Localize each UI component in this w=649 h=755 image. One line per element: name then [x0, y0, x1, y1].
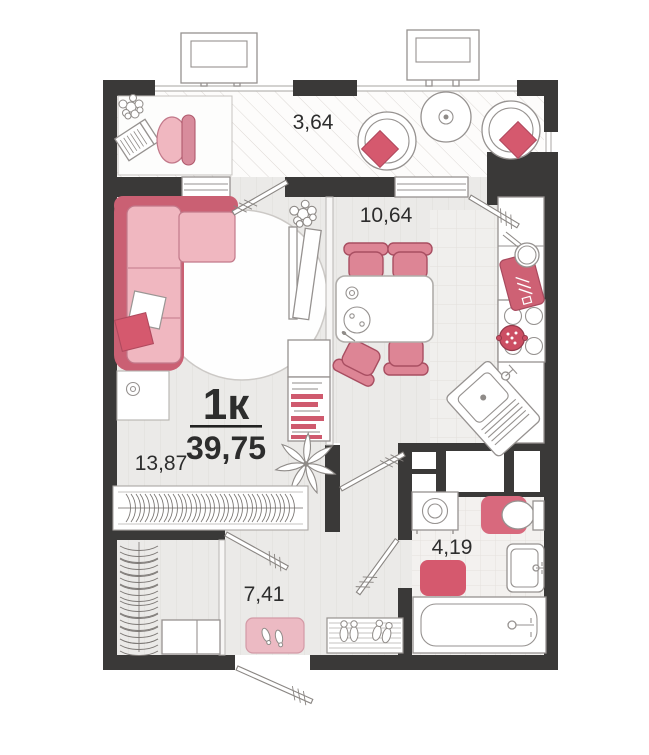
- side-table: [117, 371, 169, 420]
- dining-chair: [384, 339, 428, 375]
- living-window: [182, 177, 230, 197]
- doormat: [327, 618, 403, 653]
- kitchen-area-label: 10,64: [360, 204, 413, 227]
- total-area-label: 39,75: [186, 430, 266, 466]
- apartment-type-label: 1к: [203, 380, 250, 429]
- washing-machine: [412, 492, 458, 534]
- dining-chair: [344, 243, 388, 279]
- dining-chair: [388, 243, 432, 279]
- pillow: [115, 313, 154, 352]
- balcony-area-label: 3,64: [293, 111, 334, 134]
- chest: [162, 620, 220, 654]
- toilet: [481, 496, 544, 534]
- wardrobe-rack: [113, 486, 308, 530]
- bathroom-sink: [507, 544, 544, 592]
- coffee-table: [421, 92, 471, 142]
- bathtub: [413, 597, 546, 653]
- bathroom-area-label: 4,19: [432, 536, 473, 559]
- floor-plan: 3,64 10,64 13,87 7,41 4,19 1к 39,75: [0, 0, 649, 755]
- hallway-area-label: 7,41: [244, 583, 285, 606]
- kitchen-window: [395, 177, 468, 197]
- shoe-mat: [246, 618, 304, 653]
- ac-unit: [407, 30, 479, 86]
- bath-mat: [420, 560, 466, 596]
- bookshelf: [288, 377, 330, 441]
- office-chair: [157, 115, 195, 165]
- label-divider: [190, 425, 262, 428]
- floor-plan-drawing: 3,64 10,64 13,87 7,41 4,19 1к 39,75: [0, 0, 649, 755]
- ac-unit: [181, 33, 257, 86]
- cabinet: [288, 340, 330, 377]
- entrance-opening: [235, 655, 310, 670]
- living-area-label: 13,87: [135, 452, 188, 475]
